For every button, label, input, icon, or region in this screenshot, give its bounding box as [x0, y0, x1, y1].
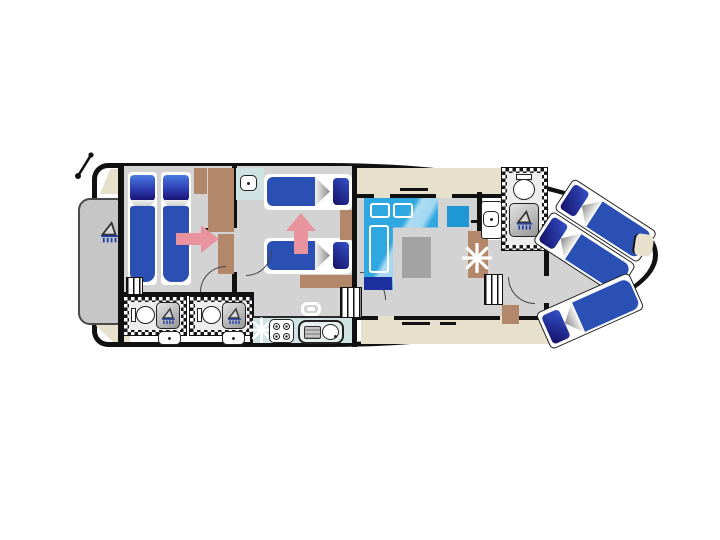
aft-cabin-bed-1 — [128, 172, 157, 285]
boat-deck-plan — [0, 0, 720, 540]
saloon-side-deck-bottom — [361, 320, 557, 344]
middle-cabin-bed-1 — [264, 174, 352, 210]
bow-seat — [632, 233, 655, 258]
helm-star-icon — [462, 243, 492, 273]
window-tick — [402, 322, 430, 325]
bow-cabin-wall — [544, 250, 549, 276]
washbasin-icon — [240, 175, 257, 191]
shower-icon — [156, 302, 180, 329]
window-tick — [400, 188, 428, 191]
drainer — [304, 326, 321, 339]
sink-bowl — [322, 324, 339, 340]
sofa-end — [364, 277, 392, 290]
saloon-bulkhead-wall — [352, 166, 357, 290]
wardrobe — [194, 168, 207, 194]
pillow — [333, 178, 349, 205]
window-gap — [378, 316, 394, 320]
shower-icon — [509, 203, 539, 237]
pillow — [130, 175, 155, 201]
steps — [484, 274, 503, 305]
mast-icon — [72, 146, 98, 182]
toilet-icon — [513, 179, 535, 200]
steps — [126, 277, 143, 295]
ceiling-hatch-icon — [301, 302, 321, 316]
window-gap — [374, 194, 390, 198]
wardrobe — [208, 168, 234, 232]
saloon-side-deck-top — [357, 168, 502, 194]
toilet-icon — [136, 306, 155, 324]
toilet-icon — [202, 306, 221, 324]
stove-icon — [269, 319, 294, 343]
swim-platform — [78, 198, 120, 325]
cabinet — [502, 305, 519, 324]
steps — [340, 287, 362, 318]
bed-conversion-arrow-up — [286, 213, 316, 255]
duvet-fold — [315, 177, 330, 206]
duvet-fold — [315, 241, 330, 270]
window-gap — [436, 194, 452, 198]
table-bracket — [471, 220, 477, 223]
washbasin-icon — [483, 211, 499, 227]
cabin-divider-wall — [232, 272, 237, 292]
bedside-cabinet — [340, 210, 352, 240]
sofa-pillow-outline — [370, 203, 390, 218]
kitchen-sink-icon — [298, 320, 344, 344]
pillow — [333, 242, 349, 269]
duvet — [130, 206, 155, 282]
duvet — [267, 177, 315, 206]
sofa-pillow-outline — [393, 203, 413, 218]
washbasin-icon — [222, 331, 245, 345]
shower-icon — [222, 302, 246, 329]
washbasin-icon — [158, 331, 181, 345]
window-tick — [440, 322, 456, 325]
chair — [447, 206, 469, 227]
pillow — [163, 175, 189, 201]
saloon-table — [402, 237, 431, 278]
sofa-mattress-outline — [369, 225, 389, 273]
bed-conversion-arrow-right — [176, 224, 220, 252]
